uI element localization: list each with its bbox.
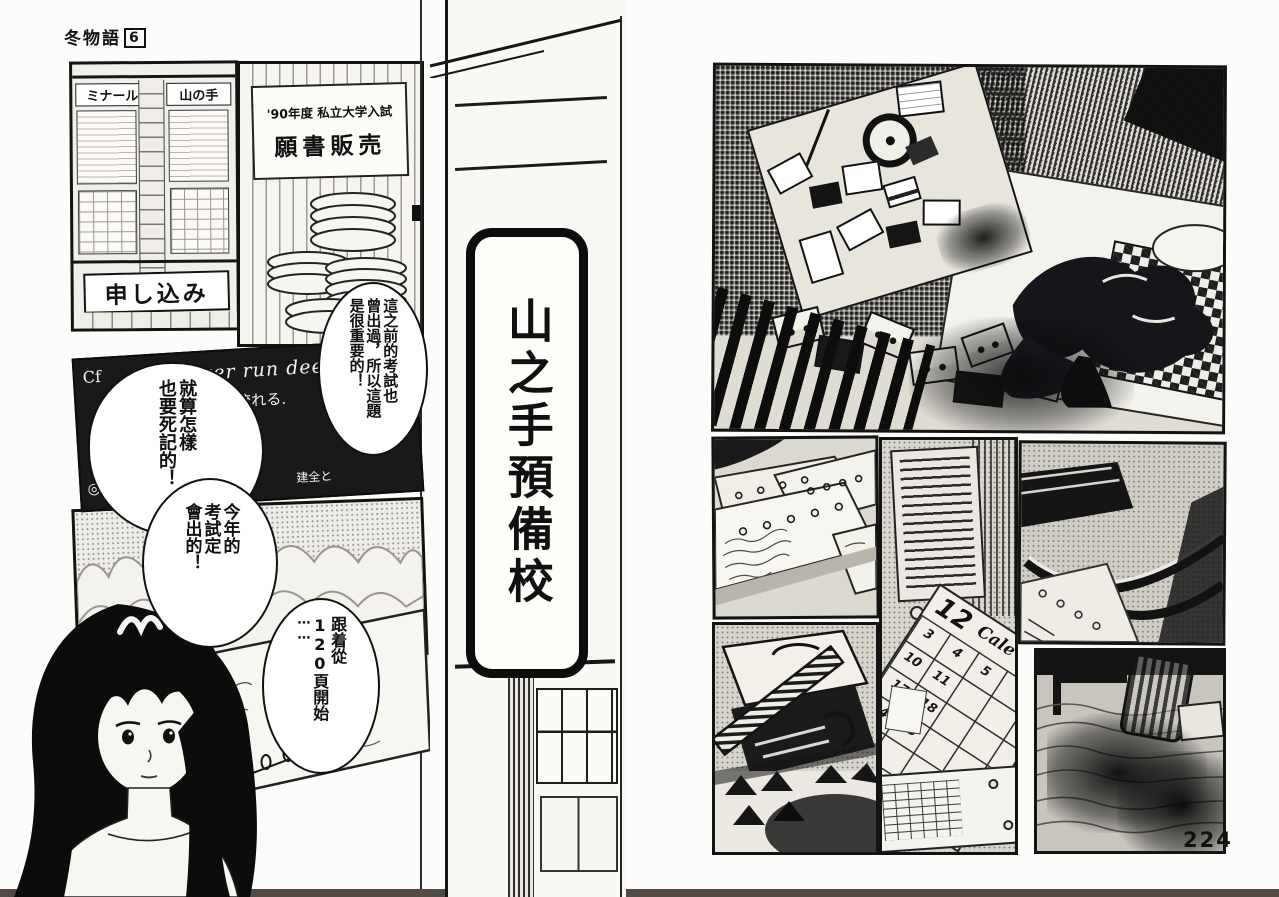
panel-wall-calendar: 12 Cale 3 4 5 10 11 17 18 24 25: [879, 437, 1018, 855]
speech-bubble-4: 跟着從 120頁開始 ⋯⋯: [262, 598, 380, 774]
series-title-text: 冬物語: [64, 29, 121, 49]
building-ledge-line: [72, 74, 235, 78]
girl-portrait-art: [14, 604, 257, 897]
tower-right-edge: [620, 16, 622, 897]
exam-poster: '90年度 私立大学入試 願書販売: [251, 82, 409, 180]
panel-desk-closeup: [1017, 440, 1226, 645]
schedule-pin-1: [988, 779, 999, 790]
tower-roof-lines: [418, 6, 630, 78]
building-window-notice-1: [76, 110, 137, 184]
speech-bubble-1: 這之前的考試也 曾出過，所以這題 是很重要的！: [318, 282, 428, 456]
speech-bubble-3: 今年的 考試定 會出的！: [142, 478, 278, 648]
speech-bubble-1-text: 這之前的考試也 曾出過，所以這題 是很重要的！: [348, 298, 398, 440]
volume-badge: 6: [124, 28, 146, 48]
wall-poster: [890, 446, 986, 602]
desk-notepad: [895, 80, 944, 117]
page-number: 224: [1183, 828, 1233, 852]
schedule-grid: [881, 779, 963, 840]
desk-item-2: [809, 182, 843, 209]
taped-note: [885, 685, 927, 734]
desk-item-3: [841, 160, 883, 195]
panel-prep-school-building: ミナール 山の手 申し込み: [69, 60, 240, 331]
series-title: 冬物語6: [64, 24, 146, 49]
panel-pencil-case: [712, 622, 879, 855]
tape-reel-hub: [884, 135, 895, 146]
panel-dark-desk: [1034, 648, 1226, 854]
exam-poster-line2: 願書販売: [274, 125, 387, 162]
prep-school-sign-text: 山之手預備校: [501, 297, 553, 609]
building-base-bricks: [74, 311, 237, 328]
speech-bubble-4-text: 跟着從 120頁開始 ⋯⋯: [296, 616, 346, 756]
desk-item-4: [882, 176, 921, 209]
building-window-notice-2: [168, 109, 229, 181]
sign-pole: [508, 670, 534, 897]
speech-bubble-3-text: 今年的 考試定 會出的！: [181, 503, 238, 623]
edge-tick-1: [412, 205, 421, 221]
schedule-sheet: [879, 765, 1018, 853]
desk-item-7: [885, 221, 921, 249]
schedule-pin-2: [1003, 820, 1014, 831]
tower-window-1: [536, 688, 618, 784]
manga-double-page-spread: 冬物語6 ミナール 山の手 申し込み '90年度 私立大学入試 願書販売: [0, 0, 1279, 897]
panel-loose-leaf-notes: [711, 435, 879, 619]
floor-shadow-blob: [909, 317, 1135, 435]
wall-poster-textlines: [900, 456, 977, 591]
chalk-prefix: Cf: [82, 367, 101, 387]
pencil-case-art: [715, 625, 876, 852]
building-ledge-line-2: [73, 259, 236, 263]
desk-item-6: [836, 208, 885, 252]
desk-item-1: [767, 152, 814, 195]
desk-closeup-art: [1020, 443, 1223, 642]
desk-book: [798, 230, 844, 284]
building-sign-right: 山の手: [166, 82, 231, 105]
tower-window-2: [540, 796, 618, 872]
chalk-japanese-3: 建全と: [296, 467, 333, 486]
panel-messy-room: [711, 63, 1227, 435]
loose-leaf-art: [714, 438, 876, 616]
exam-poster-line1: '90年度 私立大学入試: [266, 100, 392, 122]
building-window-table-2: [170, 187, 229, 253]
building-window-table-1: [78, 190, 137, 254]
prep-school-vertical-sign: 山之手預備校: [466, 228, 588, 678]
application-banner: 申し込み: [83, 270, 230, 314]
